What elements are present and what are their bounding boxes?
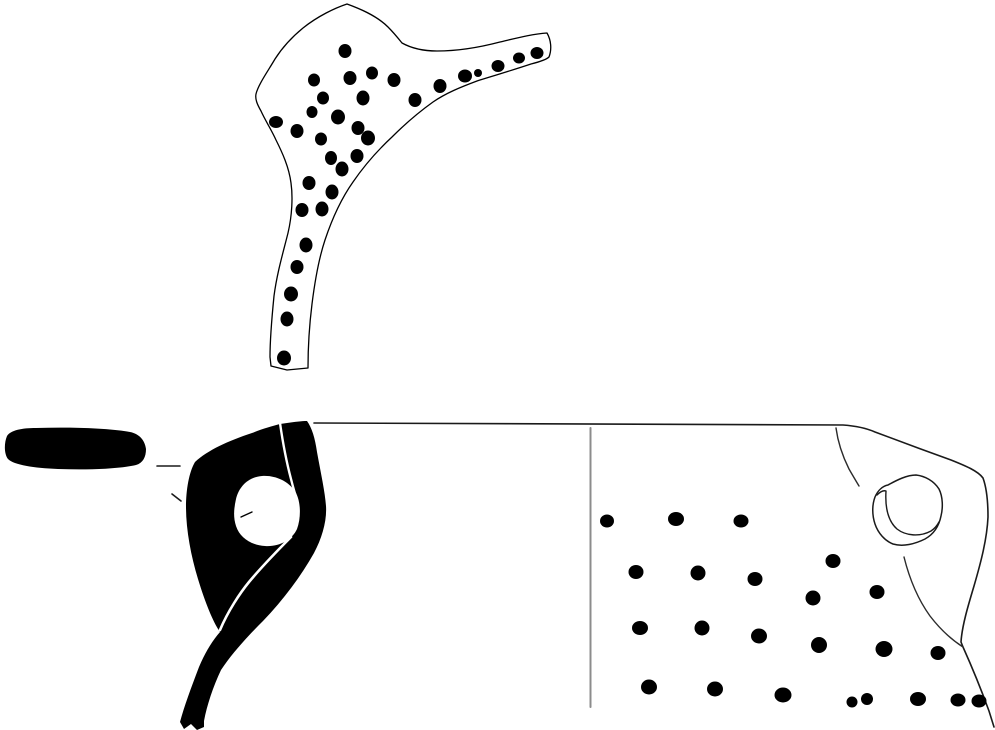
decoration-dot [277,351,291,366]
leader-tick-diagonal [172,494,181,501]
decoration-dot [458,70,472,83]
decoration-dot [910,692,926,706]
decoration-dot [308,74,320,87]
decoration-dot [931,646,946,660]
decoration-dot [366,67,378,80]
decoration-dot [691,566,706,581]
decoration-dot [316,202,329,217]
decoration-dot [351,149,364,163]
top-sherd-outline [256,4,551,370]
decoration-dot [870,585,885,599]
decoration-dot [668,512,684,526]
decoration-dot [352,121,365,135]
decoration-dot [600,515,614,528]
decoration-dot [531,47,544,59]
decoration-dot [303,176,316,190]
profile-handle-hole [234,476,300,546]
decoration-dot [291,260,304,274]
decoration-dot [751,629,767,644]
decoration-dot [300,238,313,253]
decoration-dot [861,693,873,705]
decoration-dot [331,110,345,125]
illustration-canvas [0,0,995,730]
decoration-dot [357,91,370,106]
decoration-dot [325,151,337,165]
decoration-dot [876,641,893,657]
decoration-dot [269,116,283,128]
decoration-dot [806,591,821,606]
body-contour-line [904,557,963,647]
decoration-dot [695,621,710,636]
decoration-dot [513,53,525,64]
decoration-dot [775,688,792,703]
decoration-dot [492,60,505,72]
decoration-dot [315,133,327,146]
decoration-dot [326,185,339,200]
decoration-dot [388,73,401,87]
decoration-dot [336,162,349,177]
body-crack-line [836,428,859,486]
decoration-dot [344,71,357,85]
decoration-dot [361,131,375,146]
profile-rim-section [5,428,146,470]
decoration-dot [291,124,304,138]
decoration-dot [972,695,987,708]
decoration-dot [339,44,352,58]
body-sherd-dots [600,512,987,708]
decoration-dot [409,93,422,107]
decoration-dot [281,312,294,327]
decoration-dot [284,287,298,302]
decoration-dot [317,92,329,105]
decoration-dot [707,682,723,697]
figure-svg [0,0,995,730]
decoration-dot [434,79,447,93]
decoration-dot [847,697,858,708]
decoration-dot [629,565,644,579]
decoration-dot [748,572,763,586]
decoration-dot [811,637,827,653]
decoration-dot [951,694,966,707]
decoration-dot [734,515,749,528]
decoration-dot [296,203,309,217]
decoration-dot [307,106,318,118]
decoration-dot [826,554,841,568]
decoration-dot [641,680,657,695]
decoration-dot [474,69,482,77]
decoration-dot [632,621,648,635]
